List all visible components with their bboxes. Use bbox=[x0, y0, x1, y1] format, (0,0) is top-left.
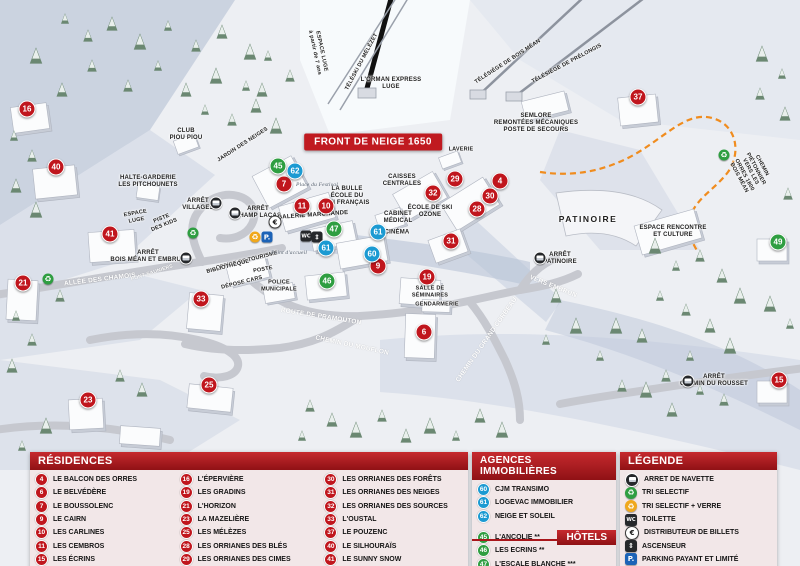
legend-marker-23: 23 bbox=[180, 513, 193, 526]
legend-item: ARRET DE NAVETTE bbox=[625, 473, 772, 486]
legend-label: DISTRIBUTEUR DE BILLETS bbox=[644, 529, 739, 536]
map-label: Point d'accueil bbox=[271, 250, 307, 256]
legend-marker-30: 30 bbox=[324, 473, 337, 486]
map-label: CINÉMA bbox=[385, 229, 410, 236]
legend-label: LES ORRIANES DES NEIGES bbox=[342, 489, 439, 496]
map-marker-11: 11 bbox=[294, 198, 311, 215]
legend-item: 61LOGEVAC IMMOBILIER bbox=[477, 496, 611, 509]
legend-label: LE BOUSSOLENC bbox=[53, 503, 113, 510]
legend-label: L'HORIZON bbox=[198, 503, 236, 510]
bus-stop-icon bbox=[534, 252, 547, 265]
map-marker-15: 15 bbox=[771, 372, 788, 389]
map-label: CAISSES CENTRALES bbox=[383, 174, 421, 188]
map-marker-29: 29 bbox=[447, 171, 464, 188]
panel-agences: AGENCES IMMOBILIÈRES 60CJM TRANSIMO61LOG… bbox=[472, 452, 616, 566]
map-marker-6: 6 bbox=[416, 324, 433, 341]
map-marker-49: 49 bbox=[770, 234, 787, 251]
recycling-glass-icon: ♻ bbox=[625, 500, 637, 512]
legend-marker-16: 16 bbox=[180, 473, 193, 486]
legend-item: ♻TRI SELECTIF + VERRE bbox=[625, 500, 772, 513]
map-marker-45: 45 bbox=[270, 158, 287, 175]
legend-label: ARRET DE NAVETTE bbox=[644, 476, 714, 483]
legend-item: ♻TRI SELECTIF bbox=[625, 486, 772, 499]
map-marker-62: 62 bbox=[287, 163, 304, 180]
legend-marker-47: 47 bbox=[477, 558, 490, 566]
legend-marker-25: 25 bbox=[180, 526, 193, 539]
parking-icon: P. bbox=[625, 553, 637, 565]
map-label: CLUB PIOU PIOU bbox=[170, 128, 203, 142]
legend-item: ⇕ASCENSEUR bbox=[625, 539, 772, 552]
atm-icon: € bbox=[625, 526, 639, 540]
map-marker-21: 21 bbox=[15, 275, 32, 292]
legend-item: 15LES ÉCRINS bbox=[35, 553, 174, 566]
legend-marker-9: 9 bbox=[35, 513, 48, 526]
map-label: GENDARMERIE bbox=[415, 302, 458, 309]
legend-item: 11LES CEMBROS bbox=[35, 539, 174, 552]
legend-label: L'OUSTAL bbox=[342, 516, 376, 523]
map-label: PATINOIRE bbox=[559, 214, 618, 224]
legend-item: 25LES MÉLÈZES bbox=[180, 526, 319, 539]
legend-label: LOGEVAC IMMOBILIER bbox=[495, 499, 573, 506]
legend-marker-41: 41 bbox=[324, 553, 337, 566]
panel-legende-title: LÉGENDE bbox=[620, 452, 777, 470]
legend-item: 19LES GRADINS bbox=[180, 486, 319, 499]
map-marker-46: 46 bbox=[319, 273, 336, 290]
legend-marker-6: 6 bbox=[35, 486, 48, 499]
recycling-icon: ♻ bbox=[188, 228, 199, 239]
legende-list: ARRET DE NAVETTE♻TRI SELECTIF♻TRI SELECT… bbox=[625, 473, 772, 566]
legend-marker-31: 31 bbox=[324, 486, 337, 499]
legend-item: 40LE SILHOURAÏS bbox=[324, 539, 463, 552]
map-marker-41: 41 bbox=[102, 226, 119, 243]
legend-label: LES ÉCRINS bbox=[53, 556, 95, 563]
legend-item: P.PARKING PAYANT ET LIMITÉ bbox=[625, 553, 772, 566]
panel-hotels-title: HÔTELS bbox=[557, 530, 616, 545]
legend-marker-33: 33 bbox=[324, 513, 337, 526]
legend-item: 31LES ORRIANES DES NEIGES bbox=[324, 486, 463, 499]
legend-label: TRI SELECTIF + VERRE bbox=[642, 503, 721, 510]
legend-label: LE BALCON DES ORRES bbox=[53, 476, 137, 483]
map-marker-60: 60 bbox=[364, 246, 381, 263]
map-label: ESPACE RENCONTRE ET CULTURE bbox=[639, 225, 706, 239]
legend-marker-45: 45 bbox=[477, 531, 490, 544]
bus-stop-icon bbox=[682, 375, 695, 388]
legend-marker-60: 60 bbox=[477, 483, 490, 496]
legend-item: 46LES ECRINS ** bbox=[477, 544, 611, 557]
recycling-icon: ♻ bbox=[43, 274, 54, 285]
legend-marker-32: 32 bbox=[324, 500, 337, 513]
legend-label: LA MAZELIÈRE bbox=[198, 516, 249, 523]
recycling-icon: ♻ bbox=[719, 150, 730, 161]
panel-agences-title: AGENCES IMMOBILIÈRES bbox=[472, 452, 616, 480]
legend-label: LE CAIRN bbox=[53, 516, 86, 523]
map-label: HALTE-GARDERIE LES PITCHOUNETS bbox=[118, 175, 177, 189]
bus-stop-icon bbox=[625, 473, 639, 487]
map-marker-61: 61 bbox=[370, 224, 387, 241]
elevator-icon: ⇕ bbox=[625, 540, 637, 552]
map-marker-40: 40 bbox=[48, 159, 65, 176]
panel-legende: LÉGENDE ARRET DE NAVETTE♻TRI SELECTIF♻TR… bbox=[620, 452, 777, 566]
legend-label: LES CARLINES bbox=[53, 529, 104, 536]
legend-item: 10LES CARLINES bbox=[35, 526, 174, 539]
legend-marker-19: 19 bbox=[180, 486, 193, 499]
bus-stop-icon bbox=[180, 252, 193, 265]
legend-label: PARKING PAYANT ET LIMITÉ bbox=[642, 556, 738, 563]
legend-marker-15: 15 bbox=[35, 553, 48, 566]
map-marker-61: 61 bbox=[318, 240, 335, 257]
map-marker-4: 4 bbox=[492, 173, 509, 190]
map-marker-28: 28 bbox=[469, 201, 486, 218]
recycling-glass-icon: ♻ bbox=[250, 232, 261, 243]
legend-item: €DISTRIBUTEUR DE BILLETS bbox=[625, 526, 772, 539]
front-de-neige-banner: FRONT DE NEIGE 1650 bbox=[304, 134, 442, 151]
panel-residences-title: RÉSIDENCES bbox=[30, 452, 468, 470]
panel-residences: RÉSIDENCES 4LE BALCON DES ORRES6LE BELVÉ… bbox=[30, 452, 468, 566]
map-label: SEMLORE REMONTÉES MÉCANIQUES POSTE DE SE… bbox=[494, 113, 578, 135]
map-marker-33: 33 bbox=[193, 291, 210, 308]
legend-marker-61: 61 bbox=[477, 496, 490, 509]
legend-item: 62NEIGE ET SOLEIL bbox=[477, 510, 611, 523]
legend-item: 16L'ÉPERVIÈRE bbox=[180, 473, 319, 486]
legend-marker-46: 46 bbox=[477, 544, 490, 557]
legend-marker-37: 37 bbox=[324, 526, 337, 539]
map-label: POLICE MUNICIPALE bbox=[261, 279, 297, 292]
toilet-icon: WC bbox=[625, 514, 637, 526]
legend-marker-62: 62 bbox=[477, 510, 490, 523]
atm-icon: € bbox=[269, 216, 282, 229]
legend-item: 9LE CAIRN bbox=[35, 513, 174, 526]
residences-list: 4LE BALCON DES ORRES6LE BELVÉDÈRE7LE BOU… bbox=[35, 473, 463, 566]
legend-label: LES GRADINS bbox=[198, 489, 246, 496]
legend-label: LES ORRIANES DES FORÊTS bbox=[342, 476, 441, 483]
map-label: ARRÊT PATINOIRE bbox=[543, 252, 577, 266]
legend-label: LES ORRIANES DES BLÉS bbox=[198, 543, 287, 550]
legend-label: NEIGE ET SOLEIL bbox=[495, 513, 555, 520]
legend-item: 29LES ORRIANES DES CIMES bbox=[180, 553, 319, 566]
parking-icon: P. bbox=[262, 232, 273, 243]
map-marker-47: 47 bbox=[326, 221, 343, 238]
legend-item: 28LES ORRIANES DES BLÉS bbox=[180, 539, 319, 552]
legend-item: 21L'HORIZON bbox=[180, 500, 319, 513]
resort-map: L'ORMAN EXPRESS LUGEESPACE LUGE à partir… bbox=[0, 0, 800, 566]
legend-label: LES ORRIANES DES SOURCES bbox=[342, 503, 447, 510]
toilet-icon: WC bbox=[301, 231, 312, 242]
legend-item: 6LE BELVÉDÈRE bbox=[35, 486, 174, 499]
legend-item: 41LE SUNNY SNOW bbox=[324, 553, 463, 566]
legend-label: TRI SELECTIF bbox=[642, 489, 689, 496]
legend-item: 4LE BALCON DES ORRES bbox=[35, 473, 174, 486]
map-marker-19: 19 bbox=[419, 269, 436, 286]
legend-marker-4: 4 bbox=[35, 473, 48, 486]
map-marker-30: 30 bbox=[482, 188, 499, 205]
bus-stop-icon bbox=[210, 197, 223, 210]
legend-label: LE SILHOURAÏS bbox=[342, 543, 396, 550]
map-label: L'ORMAN EXPRESS LUGE bbox=[361, 77, 422, 91]
legend-label: LE BELVÉDÈRE bbox=[53, 489, 106, 496]
legend-item: 37LE POUZENC bbox=[324, 526, 463, 539]
legend-label: LES CEMBROS bbox=[53, 543, 104, 550]
legend-label: LE POUZENC bbox=[342, 529, 387, 536]
map-marker-25: 25 bbox=[201, 377, 218, 394]
map-label: Place du Festival bbox=[296, 182, 338, 188]
legend-item: 23LA MAZELIÈRE bbox=[180, 513, 319, 526]
legend-marker-28: 28 bbox=[180, 540, 193, 553]
legend-label: LE SUNNY SNOW bbox=[342, 556, 401, 563]
legend-label: LES MÉLÈZES bbox=[198, 529, 247, 536]
legend-label: TOILETTE bbox=[642, 516, 676, 523]
legend-label: L'ÉPERVIÈRE bbox=[198, 476, 244, 483]
map-marker-32: 32 bbox=[425, 185, 442, 202]
legend-marker-40: 40 bbox=[324, 540, 337, 553]
legend-item: WCTOILETTE bbox=[625, 513, 772, 526]
map-marker-16: 16 bbox=[19, 101, 36, 118]
agences-list: 60CJM TRANSIMO61LOGEVAC IMMOBILIER62NEIG… bbox=[477, 483, 611, 523]
legend-item: 32LES ORRIANES DES SOURCES bbox=[324, 500, 463, 513]
legend-marker-29: 29 bbox=[180, 553, 193, 566]
legend-label: LES ECRINS ** bbox=[495, 547, 544, 554]
map-label: LAVERIE bbox=[449, 147, 474, 154]
legend-item: 30LES ORRIANES DES FORÊTS bbox=[324, 473, 463, 486]
map-marker-10: 10 bbox=[318, 198, 335, 215]
recycling-icon: ♻ bbox=[625, 487, 637, 499]
legend-marker-7: 7 bbox=[35, 500, 48, 513]
legend-item: 60CJM TRANSIMO bbox=[477, 483, 611, 496]
legend-label: LES ORRIANES DES CIMES bbox=[198, 556, 291, 563]
legend-marker-10: 10 bbox=[35, 526, 48, 539]
bus-stop-icon bbox=[229, 207, 242, 220]
legend-label: CJM TRANSIMO bbox=[495, 486, 549, 493]
map-marker-37: 37 bbox=[630, 89, 647, 106]
map-marker-31: 31 bbox=[443, 233, 460, 250]
legend-label: ASCENSEUR bbox=[642, 543, 686, 550]
legend-item: 7LE BOUSSOLENC bbox=[35, 500, 174, 513]
map-label: ÉCOLE DE SKI OZONE bbox=[408, 205, 453, 219]
legend-marker-11: 11 bbox=[35, 540, 48, 553]
legend-item: 33L'OUSTAL bbox=[324, 513, 463, 526]
map-label: ARRÊT BOIS MÉAN ET EMBRUN bbox=[110, 250, 185, 264]
map-marker-23: 23 bbox=[80, 392, 97, 409]
legend-label: L'ESCALE BLANCHE *** bbox=[495, 561, 576, 566]
map-label: SALLE DE SÉMINAIRES bbox=[412, 285, 448, 298]
legend-item: 47L'ESCALE BLANCHE *** bbox=[477, 557, 611, 566]
legend-marker-21: 21 bbox=[180, 500, 193, 513]
